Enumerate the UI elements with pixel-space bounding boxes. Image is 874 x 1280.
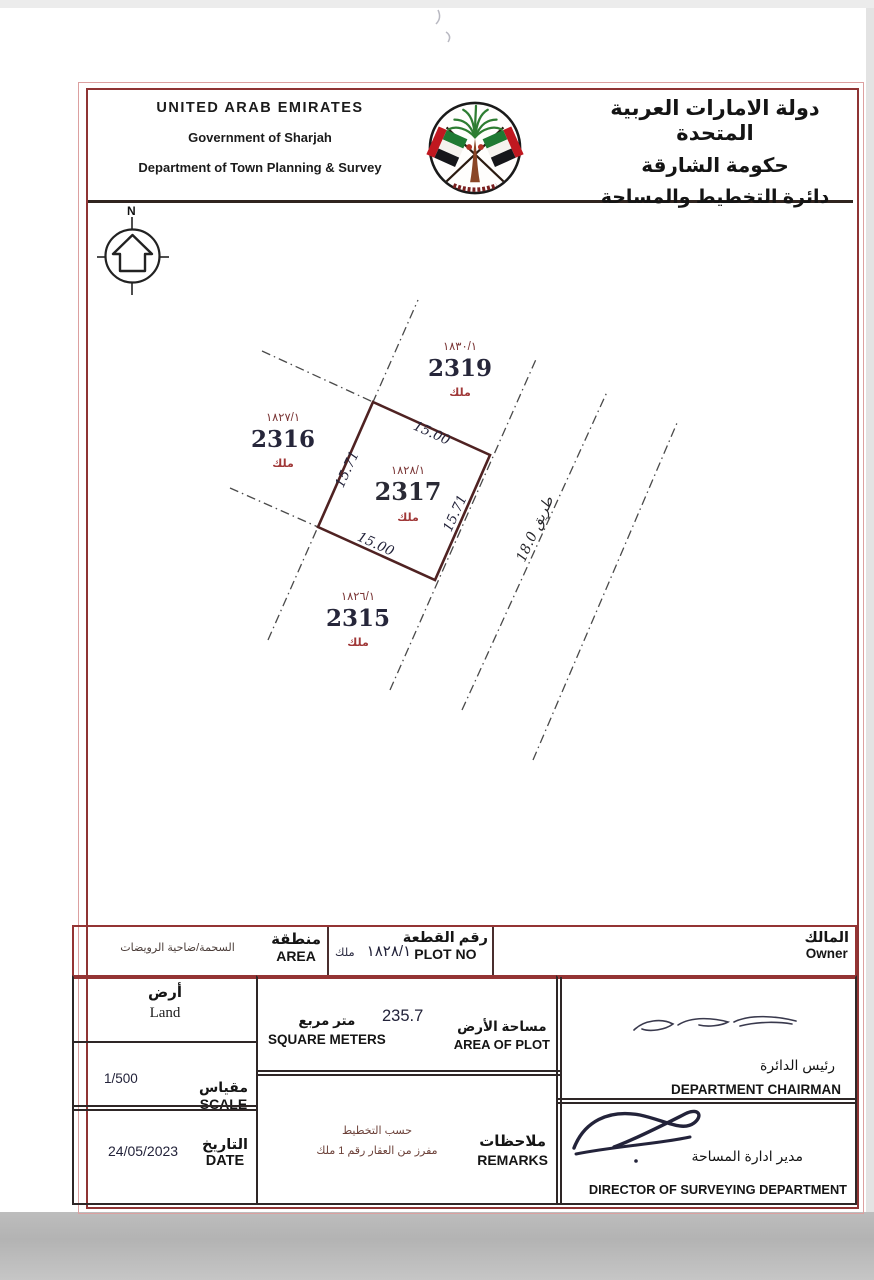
unit-label-ar: متر مربع [268, 1013, 386, 1029]
unit-label-en: SQUARE METERS [268, 1032, 386, 1047]
scale-cell: 1/500 مقياس SCALE [72, 1041, 258, 1111]
chairman-label-ar: رئيس الدائرة [760, 1057, 835, 1074]
land-cell: أرض Land [72, 975, 258, 1043]
plot-2315-number: 2315 [326, 605, 390, 632]
area-value: السحمة/ضاحية الرويضات [94, 941, 261, 954]
date-value: 24/05/2023 [108, 1143, 178, 1159]
plot-2315-tenure: ملك [347, 637, 369, 649]
scale-value: 1/500 [104, 1071, 138, 1086]
department-title-en: Department of Town Planning & Survey [110, 160, 410, 175]
survey-map: 15.00 15.00 15.71 15.71 طريق 18.0 ١٨٣٠/١… [90, 290, 790, 940]
department-title-ar: دائرة التخطيط والمساحة [575, 186, 855, 209]
plot-2317-tenure: ملك [397, 512, 419, 524]
plot-2316-number: 2316 [251, 426, 315, 453]
table-row-identity: السحمة/ضاحية الرويضات منطقة AREA ملك ١٨٢… [72, 925, 857, 979]
government-title-ar: حكومة الشارقة [575, 153, 855, 178]
owner-label-ar: المالك [804, 930, 849, 946]
boundary-line-south-extended [230, 488, 318, 527]
director-label-en: DIRECTOR OF SURVEYING DEPARTMENT [589, 1182, 847, 1197]
plot-2319-ref: ١٨٣٠/١ [443, 341, 477, 353]
plot-no-label-ar: رقم القطعة [403, 930, 488, 946]
scan-edge-right [866, 8, 874, 1212]
scan-mark [420, 2, 480, 62]
dim-left: 15.71 [332, 448, 363, 490]
chairman-label-en: DEPARTMENT CHAIRMAN [671, 1082, 841, 1097]
boundary-line-north-extended [262, 351, 373, 402]
page: { "colors": { "border_red": "#943434", "… [0, 0, 874, 1280]
date-label-ar: التاريخ [202, 1137, 248, 1153]
land-label-ar: أرض [74, 983, 256, 1001]
scan-edge-bottom [0, 1212, 874, 1280]
remarks-cell: حسب التخطيط مفرز من العقار رقم 1 ملك ملا… [256, 1070, 562, 1205]
area-label-en: AREA [271, 948, 321, 964]
owner-label-en: Owner [804, 946, 849, 961]
director-label-ar: مدير ادارة المساحة [691, 1148, 803, 1165]
plot-no-label-en: PLOT NO [403, 946, 488, 962]
plot-2319-number: 2319 [428, 355, 492, 382]
plot-2315-ref: ١٨٢٦/١ [341, 591, 375, 603]
plot-2316-ref: ١٨٢٧/١ [266, 412, 300, 424]
sharjah-emblem-icon [426, 99, 524, 197]
date-label-en: DATE [202, 1153, 248, 1169]
remarks-label-ar: ملاحظات [477, 1132, 548, 1150]
country-title-en: UNITED ARAB EMIRATES [110, 100, 410, 116]
country-title-ar: دولة الامارات العربية المتحدة [575, 96, 855, 146]
area-cell: السحمة/ضاحية الرويضات منطقة AREA [74, 927, 327, 977]
road-label: طريق 18.0 [514, 493, 558, 564]
plot-2317-number: 2317 [375, 477, 442, 506]
date-cell: 24/05/2023 التاريخ DATE [72, 1105, 258, 1205]
area-of-plot-label-ar: مساحة الأرض [454, 1019, 550, 1035]
chairman-cell: رئيس الدائرة DEPARTMENT CHAIRMAN [556, 975, 857, 1104]
dim-bottom: 15.00 [355, 529, 397, 560]
far-east-boundary-line [533, 423, 677, 760]
owner-cell: المالك Owner [492, 927, 855, 977]
plot-2319-tenure: ملك [449, 387, 471, 399]
header-english: UNITED ARAB EMIRATES Government of Sharj… [110, 100, 410, 175]
plot-2316-tenure: ملك [272, 458, 294, 470]
remarks-line1: حسب التخطيط [286, 1122, 468, 1142]
land-label-en: Land [74, 1005, 256, 1022]
plot-2317-ref: ١٨٢٨/١ [391, 465, 425, 477]
chairman-signature [628, 1009, 813, 1047]
remarks-label-en: REMARKS [477, 1152, 548, 1168]
plot-no-tenure: ملك [335, 945, 355, 959]
government-title-en: Government of Sharjah [110, 130, 410, 145]
area-of-plot-label-en: AREA OF PLOT [454, 1037, 550, 1052]
area-label-ar: منطقة [271, 930, 321, 948]
scale-label-ar: مقياس [199, 1079, 248, 1096]
area-of-plot-cell: متر مربع SQUARE METERS 235.7 مساحة الأرض… [256, 975, 562, 1076]
dim-top: 15.00 [411, 418, 453, 449]
compass-north-label: N [127, 204, 136, 218]
area-of-plot-value: 235.7 [382, 1007, 423, 1026]
director-cell: مدير ادارة المساحة DIRECTOR OF SURVEYING… [556, 1098, 857, 1205]
header-arabic: دولة الامارات العربية المتحدة حكومة الشا… [575, 96, 855, 209]
north-arrow-icon: N [96, 202, 170, 296]
road-far-edge-line [462, 392, 607, 710]
remarks-line2: مفرز من العقار رقم 1 ملك [286, 1142, 468, 1162]
plot-no-cell: ملك ١٨٢٨/١ رقم القطعة PLOT NO [327, 927, 492, 977]
dim-right: 15.71 [440, 492, 471, 534]
